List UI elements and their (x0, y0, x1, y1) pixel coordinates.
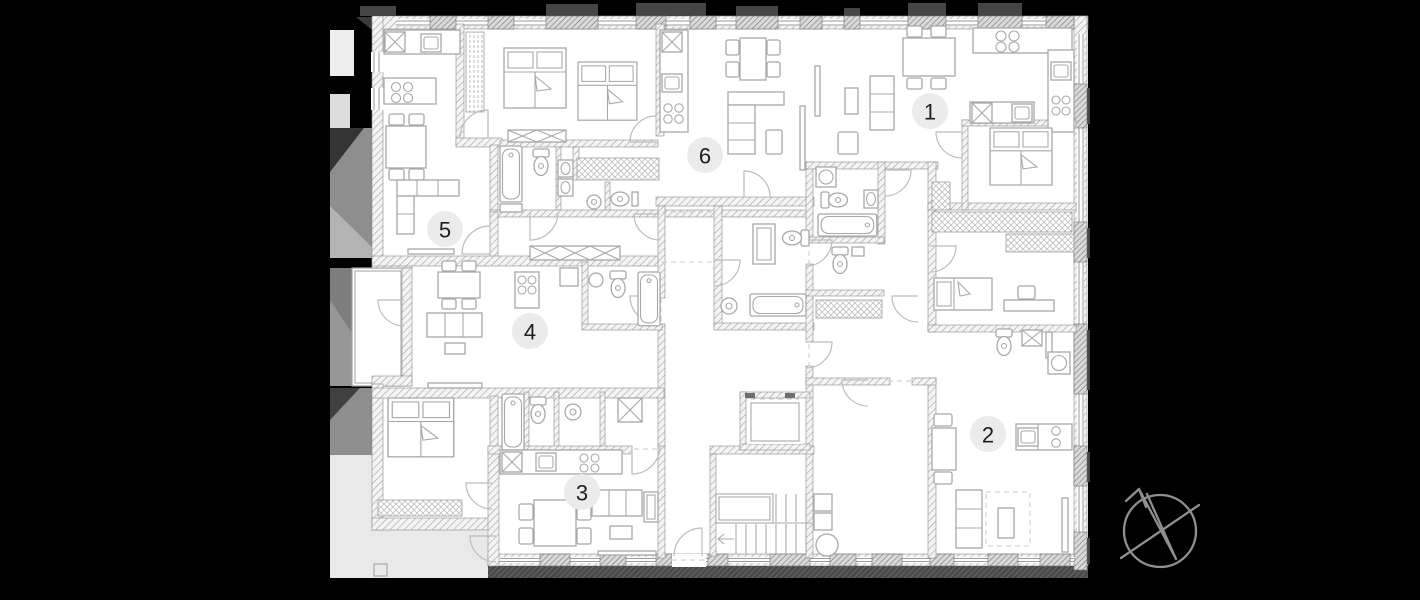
sw-bedroom (388, 398, 454, 457)
dining-table-icon (534, 500, 576, 546)
toilet-icon (821, 192, 848, 208)
bathtub-icon (750, 294, 806, 316)
dresser (508, 130, 566, 142)
balcony (352, 268, 404, 386)
washbasin-icon (816, 167, 836, 187)
shower-icon (618, 398, 642, 422)
washbasin-icon (721, 298, 737, 314)
svg-text:3: 3 (576, 481, 588, 506)
chair-icon (816, 534, 838, 556)
unit-badge-3[interactable]: 3 (564, 474, 600, 510)
unit-badge-5[interactable]: 5 (427, 211, 463, 247)
washbasin-icon (587, 195, 601, 209)
washing-machine-icon (1048, 352, 1070, 374)
basin-icon (558, 160, 573, 177)
floor-plan: 123456 (0, 0, 1420, 600)
tv-icon (800, 106, 805, 170)
top-slabs (360, 3, 1022, 16)
unit-badge-6[interactable]: 6 (687, 137, 723, 173)
compass-icon (1121, 489, 1199, 567)
washbasin-icon (589, 273, 603, 287)
basin-icon (558, 179, 573, 196)
tv-icon (815, 66, 820, 116)
svg-text:1: 1 (924, 100, 936, 125)
bathtub-icon (818, 214, 877, 236)
shower-icon (753, 224, 775, 264)
unit-badge-1[interactable]: 1 (912, 93, 948, 129)
bed-icon (388, 398, 454, 457)
sofa-icon (427, 313, 482, 337)
toilet-icon (996, 329, 1012, 356)
svg-text:6: 6 (699, 144, 711, 169)
toilet-icon (783, 230, 810, 246)
tv-icon (598, 551, 656, 555)
dining-table-icon (438, 272, 480, 298)
basin-icon (864, 190, 878, 208)
bathtub-icon (502, 394, 524, 450)
washbasin-icon (565, 404, 581, 420)
tv-icon (1062, 498, 1068, 552)
dining-table-icon (740, 38, 766, 80)
side-table-icon (644, 492, 658, 522)
unit-badge-4[interactable]: 4 (512, 313, 548, 349)
tv-icon (428, 383, 482, 388)
dining-table-icon (903, 38, 955, 76)
dining-table-icon (386, 126, 426, 168)
bathtub-icon (500, 146, 522, 202)
svg-text:4: 4 (524, 320, 536, 345)
toilet-icon (832, 247, 848, 274)
svg-text:2: 2 (982, 423, 994, 448)
bathtub-icon (638, 272, 660, 326)
desk-icon (1004, 300, 1054, 311)
tv-icon (408, 249, 454, 254)
bed-icon (578, 62, 637, 120)
toilet-icon (610, 271, 626, 298)
unit-badge-2[interactable]: 2 (970, 416, 1006, 452)
shower-icon (1022, 330, 1042, 346)
floor-plan-viewer: 123456 (0, 0, 1420, 600)
svg-text:5: 5 (439, 218, 451, 243)
bed-icon (504, 48, 566, 108)
bed-icon (990, 128, 1052, 185)
armchair-icon (766, 130, 782, 154)
toilet-icon (533, 149, 549, 176)
single-bed-icon (934, 278, 992, 310)
bottom-piers (540, 554, 1070, 566)
dining-table-icon (932, 428, 956, 470)
hall-wardrobe (530, 246, 620, 260)
sofa-icon (956, 490, 982, 548)
sofa-icon (870, 76, 894, 130)
armchair-icon (838, 132, 858, 154)
elevator-icon (745, 393, 803, 444)
toilet-icon (530, 397, 546, 424)
fridge-icon (560, 268, 578, 286)
toilet-icon (611, 192, 638, 206)
chair-icon (1018, 286, 1035, 299)
